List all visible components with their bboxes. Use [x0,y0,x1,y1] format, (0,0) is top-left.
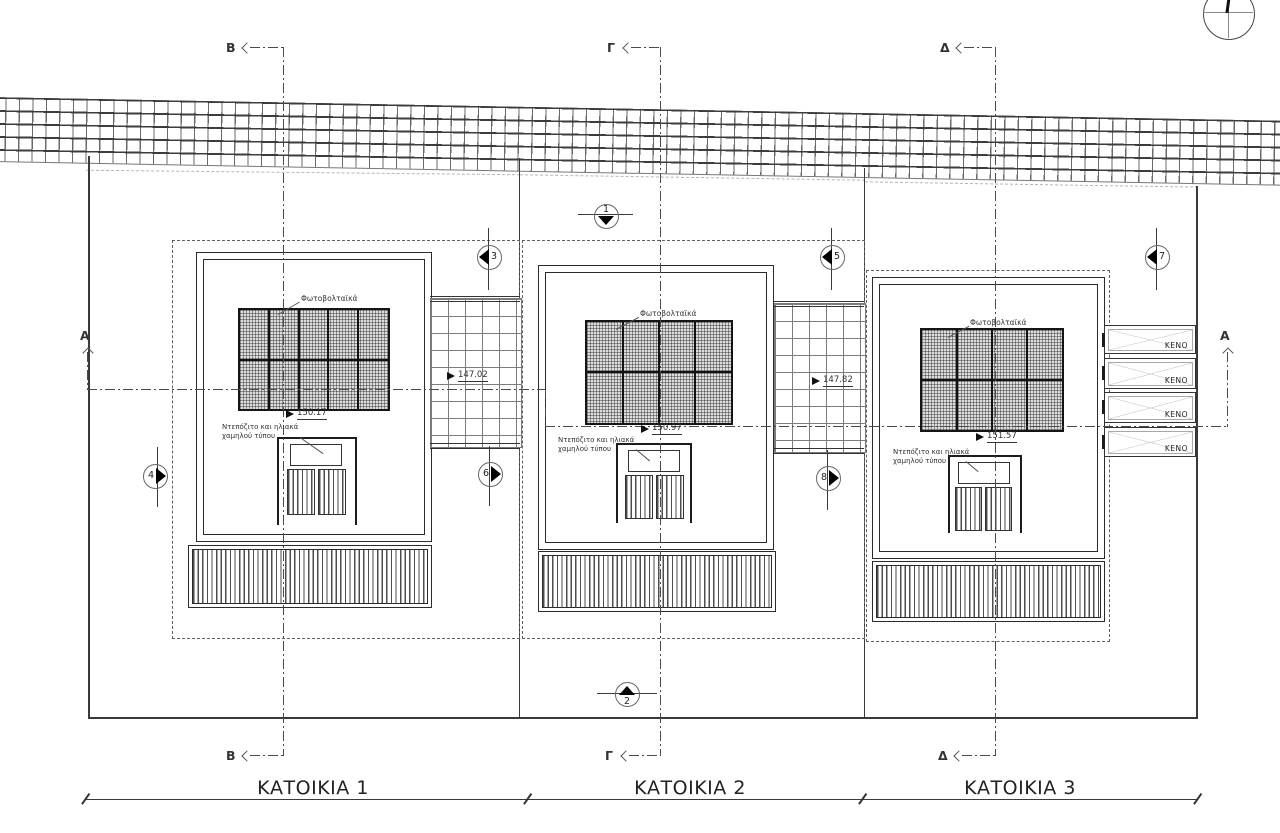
terrace1-level: 147.02 [447,370,488,382]
section-marker-d-top: Δ [940,40,950,55]
void-box-3: KENO [1104,392,1196,423]
house-title-3: ΚΑΤΟΙΚΙΑ 3 [945,777,1095,799]
house2-tank [628,450,680,472]
void-label: KENO [1165,410,1188,419]
void-tie-4 [1102,435,1105,449]
level-flag-icon [812,377,820,385]
void-box-4: KENO [1104,427,1196,457]
void-label: KENO [1165,341,1188,350]
house2-pv-array [585,320,733,425]
house2-solar-panel-1 [625,475,653,519]
void-label: KENO [1165,376,1188,385]
section-stub-g-bottom [629,755,660,756]
view-marker-5: 5 [820,245,845,270]
terrace2-beam-bottom [774,448,864,454]
house1-solar-panel-1 [287,469,315,515]
house1-equip-label: Ντεπόζιτο και ηλιακά χαμηλού τύπου [222,423,298,442]
section-marker-g-top: Γ [607,40,615,55]
house-title-1: ΚΑΤΟΙΚΙΑ 1 [238,777,388,799]
void-box-2: KENO [1104,358,1196,389]
section-marker-b-top: B [226,40,236,55]
section-stub-d-top [964,47,995,48]
section-marker-b-bottom: B [226,748,236,763]
section-marker-a-left: A [80,328,90,343]
house2-stair-wall-left [616,443,618,523]
house3-deck-hatch [872,561,1105,622]
section-marker-d-bottom: Δ [938,748,948,763]
level-flag-icon [641,425,649,433]
section-line-a-jog [545,389,546,427]
house3-solar-panel-2 [985,487,1012,531]
void-tie-2 [1102,366,1105,380]
house1-roof-level: 150.17 [286,408,327,420]
boundary-wall-hatch [0,97,1280,186]
level-flag-icon [976,433,984,441]
house3-equip-label: Ντεπόζιτο και ηλιακά χαμηλού τύπου [893,448,969,467]
section-a-right-stub [1227,352,1228,427]
house1-deck-hatch [188,545,432,608]
house3-pv-label: Φωτοβολταϊκά [970,318,1026,327]
plot-edge-left [88,156,90,718]
house3-pv-array [920,328,1064,432]
house2-equip-label: Ντεπόζιτο και ηλιακά χαμηλού τύπου [558,436,634,455]
void-box-1: KENO [1104,325,1196,354]
section-marker-a-right: A [1220,328,1230,343]
site-plan-sheet: Φωτοβολταϊκά 150.17 Ντεπόζιτο και ηλιακά… [0,0,1280,833]
house1-pv-label: Φωτοβολταϊκά [301,294,357,303]
section-line-d [995,47,996,756]
section-line-b [283,47,284,756]
terrace2-beam-top [774,301,864,307]
house1-stair-wall-right [355,437,357,525]
house2-deck-hatch [538,551,776,612]
level-flag-icon [286,410,294,418]
house3-roof-level: 151.57 [976,431,1017,443]
terrace1-beam-bottom [430,443,520,449]
house-title-2: ΚΑΤΟΙΚΙΑ 2 [615,777,765,799]
section-line-a-west [87,389,545,390]
house2-roof-level: 150.97 [641,423,682,435]
view-marker-4: 4 [143,464,168,489]
terrace1-beam-top [430,296,520,302]
dimension-line [85,799,1198,800]
house3-stair-wall-right [1020,455,1022,533]
north-arrow-icon [1203,0,1255,40]
section-stub-g-top [631,47,660,48]
section-marker-g-bottom: Γ [605,748,613,763]
terrace2-level: 147.82 [812,375,853,387]
level-flag-icon [447,372,455,380]
view-marker-3: 3 [477,245,502,270]
void-tie-3 [1102,400,1105,414]
section-stub-d-bottom [962,755,995,756]
section-stub-b-bottom [250,755,283,756]
view-marker-6: 6 [478,462,503,487]
section-a-left-stub [87,352,88,390]
void-tie-1 [1102,333,1105,347]
terrain-line-1 [86,170,520,176]
view-marker-2: 2 [615,682,640,707]
plot-edge-right [1196,186,1198,718]
house3-solar-panel-1 [955,487,982,531]
view-marker-8: 8 [816,466,841,491]
house1-stair-wall-left [277,437,279,525]
section-line-g [660,47,661,756]
house2-pv-label: Φωτοβολταϊκά [640,309,696,318]
house1-solar-panel-2 [318,469,346,515]
house2-stair-wall-right [690,443,692,523]
view-marker-7: 7 [1145,245,1170,270]
void-label: KENO [1165,444,1188,453]
plot-edge-bottom [88,717,1198,719]
view-marker-1: 1 [594,204,619,229]
house1-pv-array [238,308,390,411]
section-stub-b-top [250,47,283,48]
